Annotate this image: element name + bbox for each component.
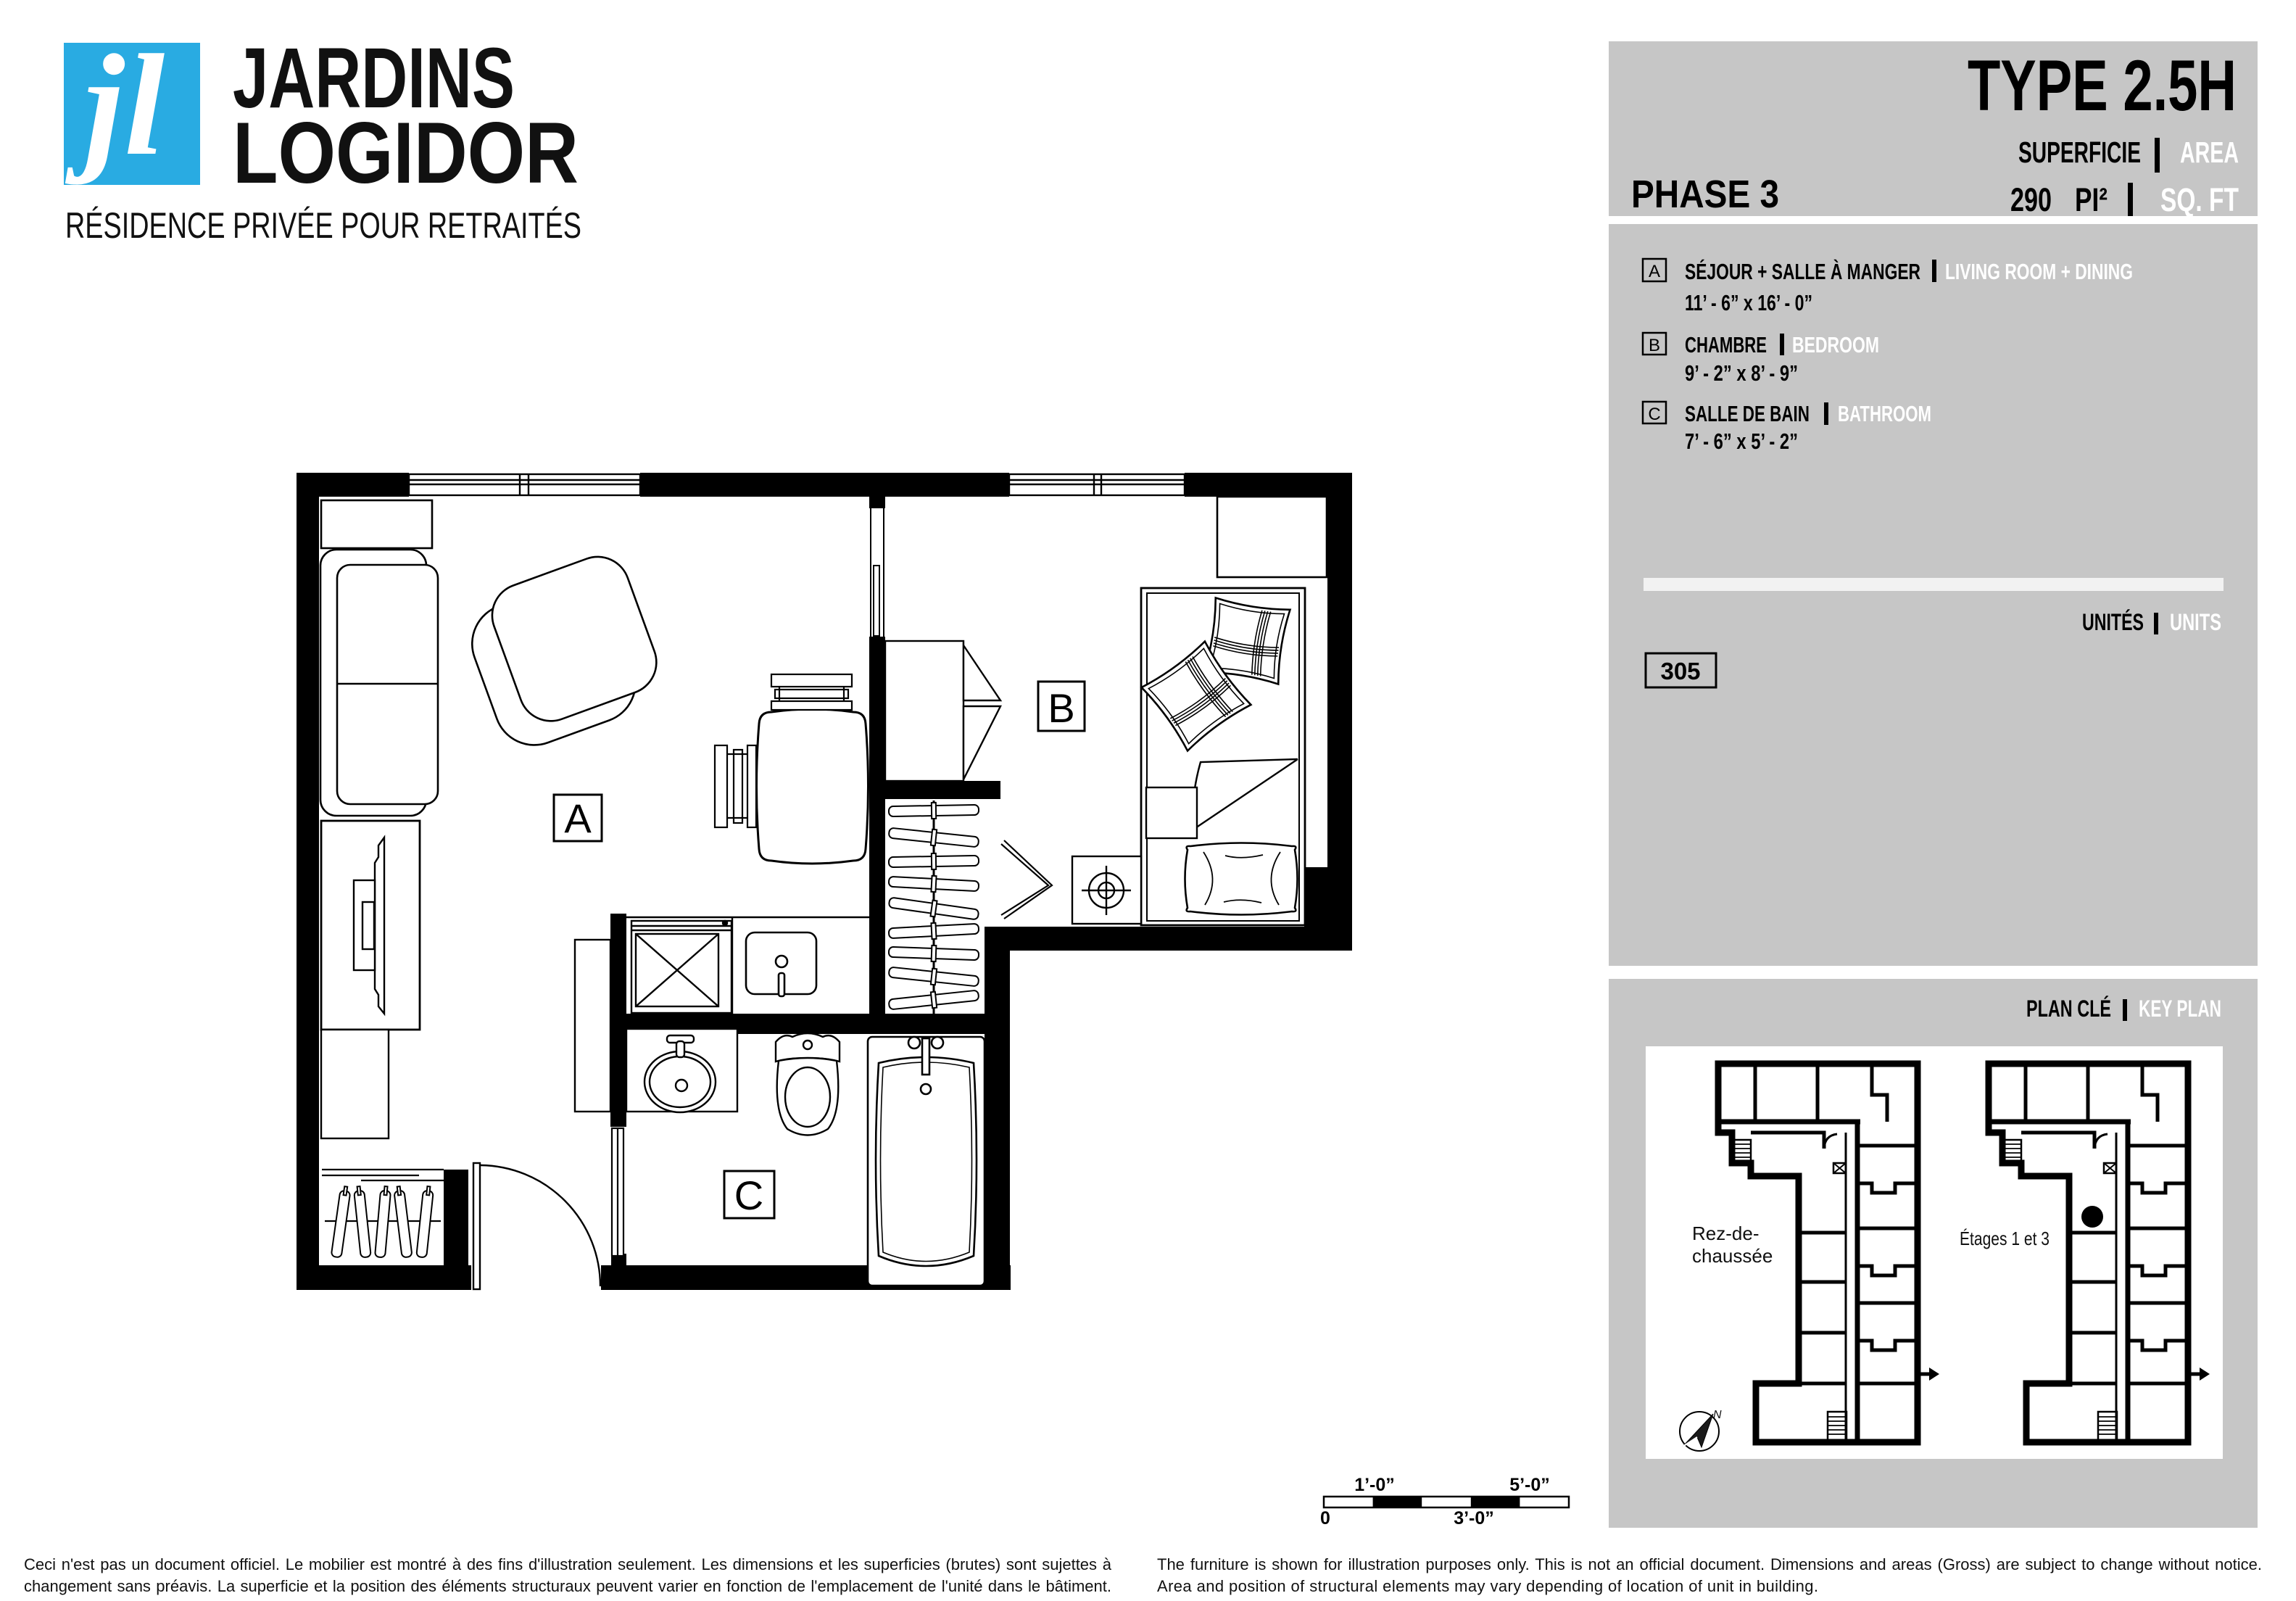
svg-text:B: B bbox=[1649, 336, 1660, 355]
svg-text:PLAN CLÉ: PLAN CLÉ bbox=[2026, 996, 2111, 1022]
svg-text:5’-0”: 5’-0” bbox=[1509, 1475, 1550, 1495]
svg-text:PHASE 3: PHASE 3 bbox=[1631, 173, 1779, 216]
svg-text:290: 290 bbox=[2010, 181, 2052, 218]
svg-text:0: 0 bbox=[1320, 1508, 1330, 1528]
svg-text:305: 305 bbox=[1660, 658, 1700, 684]
svg-text:UNITÉS: UNITÉS bbox=[2082, 609, 2144, 635]
svg-text:N: N bbox=[1713, 1409, 1722, 1421]
svg-text:UNITS: UNITS bbox=[2170, 609, 2221, 635]
svg-text:SALLE DE BAIN: SALLE DE BAIN bbox=[1685, 401, 1810, 426]
svg-text:A: A bbox=[1649, 262, 1660, 281]
svg-text:LOGIDOR: LOGIDOR bbox=[233, 104, 579, 202]
svg-text:3’-0”: 3’-0” bbox=[1454, 1508, 1494, 1528]
svg-text:SÉJOUR + SALLE À MANGER: SÉJOUR + SALLE À MANGER bbox=[1685, 259, 1920, 284]
svg-text:chaussée: chaussée bbox=[1692, 1245, 1773, 1267]
svg-text:AREA: AREA bbox=[2180, 136, 2239, 169]
svg-text:BEDROOM: BEDROOM bbox=[1792, 332, 1879, 357]
svg-text:TYPE 2.5H: TYPE 2.5H bbox=[1968, 45, 2237, 125]
svg-text:BATHROOM: BATHROOM bbox=[1838, 401, 1931, 426]
svg-text:KEY PLAN: KEY PLAN bbox=[2139, 996, 2221, 1022]
svg-text:LIVING ROOM + DINING: LIVING ROOM + DINING bbox=[1945, 259, 2133, 284]
svg-text:Rez-de-: Rez-de- bbox=[1692, 1223, 1759, 1244]
svg-text:PI²: PI² bbox=[2075, 181, 2108, 218]
svg-text:B: B bbox=[1048, 685, 1074, 731]
svg-text:1’-0”: 1’-0” bbox=[1354, 1475, 1395, 1495]
svg-text:SQ. FT: SQ. FT bbox=[2160, 181, 2239, 218]
svg-text:A: A bbox=[564, 795, 592, 841]
svg-text:7’ - 6” x 5’ - 2”: 7’ - 6” x 5’ - 2” bbox=[1685, 429, 1798, 454]
svg-text:9’ - 2” x 8’ - 9”: 9’ - 2” x 8’ - 9” bbox=[1685, 360, 1798, 386]
svg-text:Étages 1 et 3: Étages 1 et 3 bbox=[1960, 1228, 2050, 1249]
svg-text:C: C bbox=[734, 1172, 763, 1218]
svg-text:11’ - 6” x 16’ - 0”: 11’ - 6” x 16’ - 0” bbox=[1685, 290, 1812, 315]
svg-text:SUPERFICIE: SUPERFICIE bbox=[2018, 136, 2141, 169]
svg-text:C: C bbox=[1648, 405, 1660, 424]
svg-text:RÉSIDENCE PRIVÉE POUR RETRAITÉ: RÉSIDENCE PRIVÉE POUR RETRAITÉS bbox=[65, 205, 581, 246]
svg-text:CHAMBRE: CHAMBRE bbox=[1685, 332, 1767, 357]
